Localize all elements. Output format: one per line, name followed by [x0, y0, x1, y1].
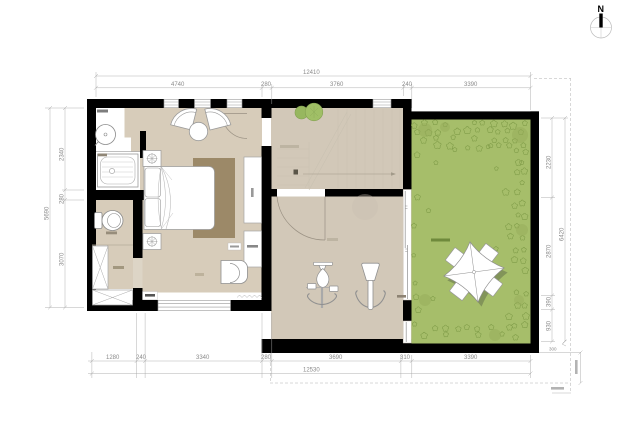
svg-text:3390: 3390	[464, 355, 478, 361]
svg-text:240: 240	[136, 355, 147, 361]
svg-text:2340: 2340	[60, 147, 66, 161]
svg-text:3390: 3390	[464, 82, 478, 88]
svg-text:390: 390	[547, 296, 553, 307]
svg-text:300: 300	[549, 347, 557, 352]
svg-text:N: N	[598, 4, 605, 14]
svg-text:1280: 1280	[106, 355, 120, 361]
svg-text:3340: 3340	[196, 355, 210, 361]
svg-text:5690: 5690	[45, 206, 51, 220]
svg-text:12530: 12530	[303, 368, 320, 374]
svg-text:2230: 2230	[547, 155, 553, 169]
svg-text:6420: 6420	[560, 227, 566, 241]
svg-text:3690: 3690	[329, 355, 343, 361]
svg-text:3760: 3760	[330, 82, 344, 88]
svg-text:12410: 12410	[303, 70, 320, 76]
svg-text:4740: 4740	[171, 82, 185, 88]
svg-text:280: 280	[60, 193, 66, 204]
svg-text:280: 280	[261, 355, 272, 361]
svg-text:280: 280	[261, 82, 272, 88]
svg-text:310: 310	[400, 355, 411, 361]
svg-text:3070: 3070	[60, 252, 66, 266]
svg-text:2870: 2870	[547, 244, 553, 258]
svg-text:240: 240	[402, 82, 413, 88]
svg-text:930: 930	[547, 320, 553, 331]
